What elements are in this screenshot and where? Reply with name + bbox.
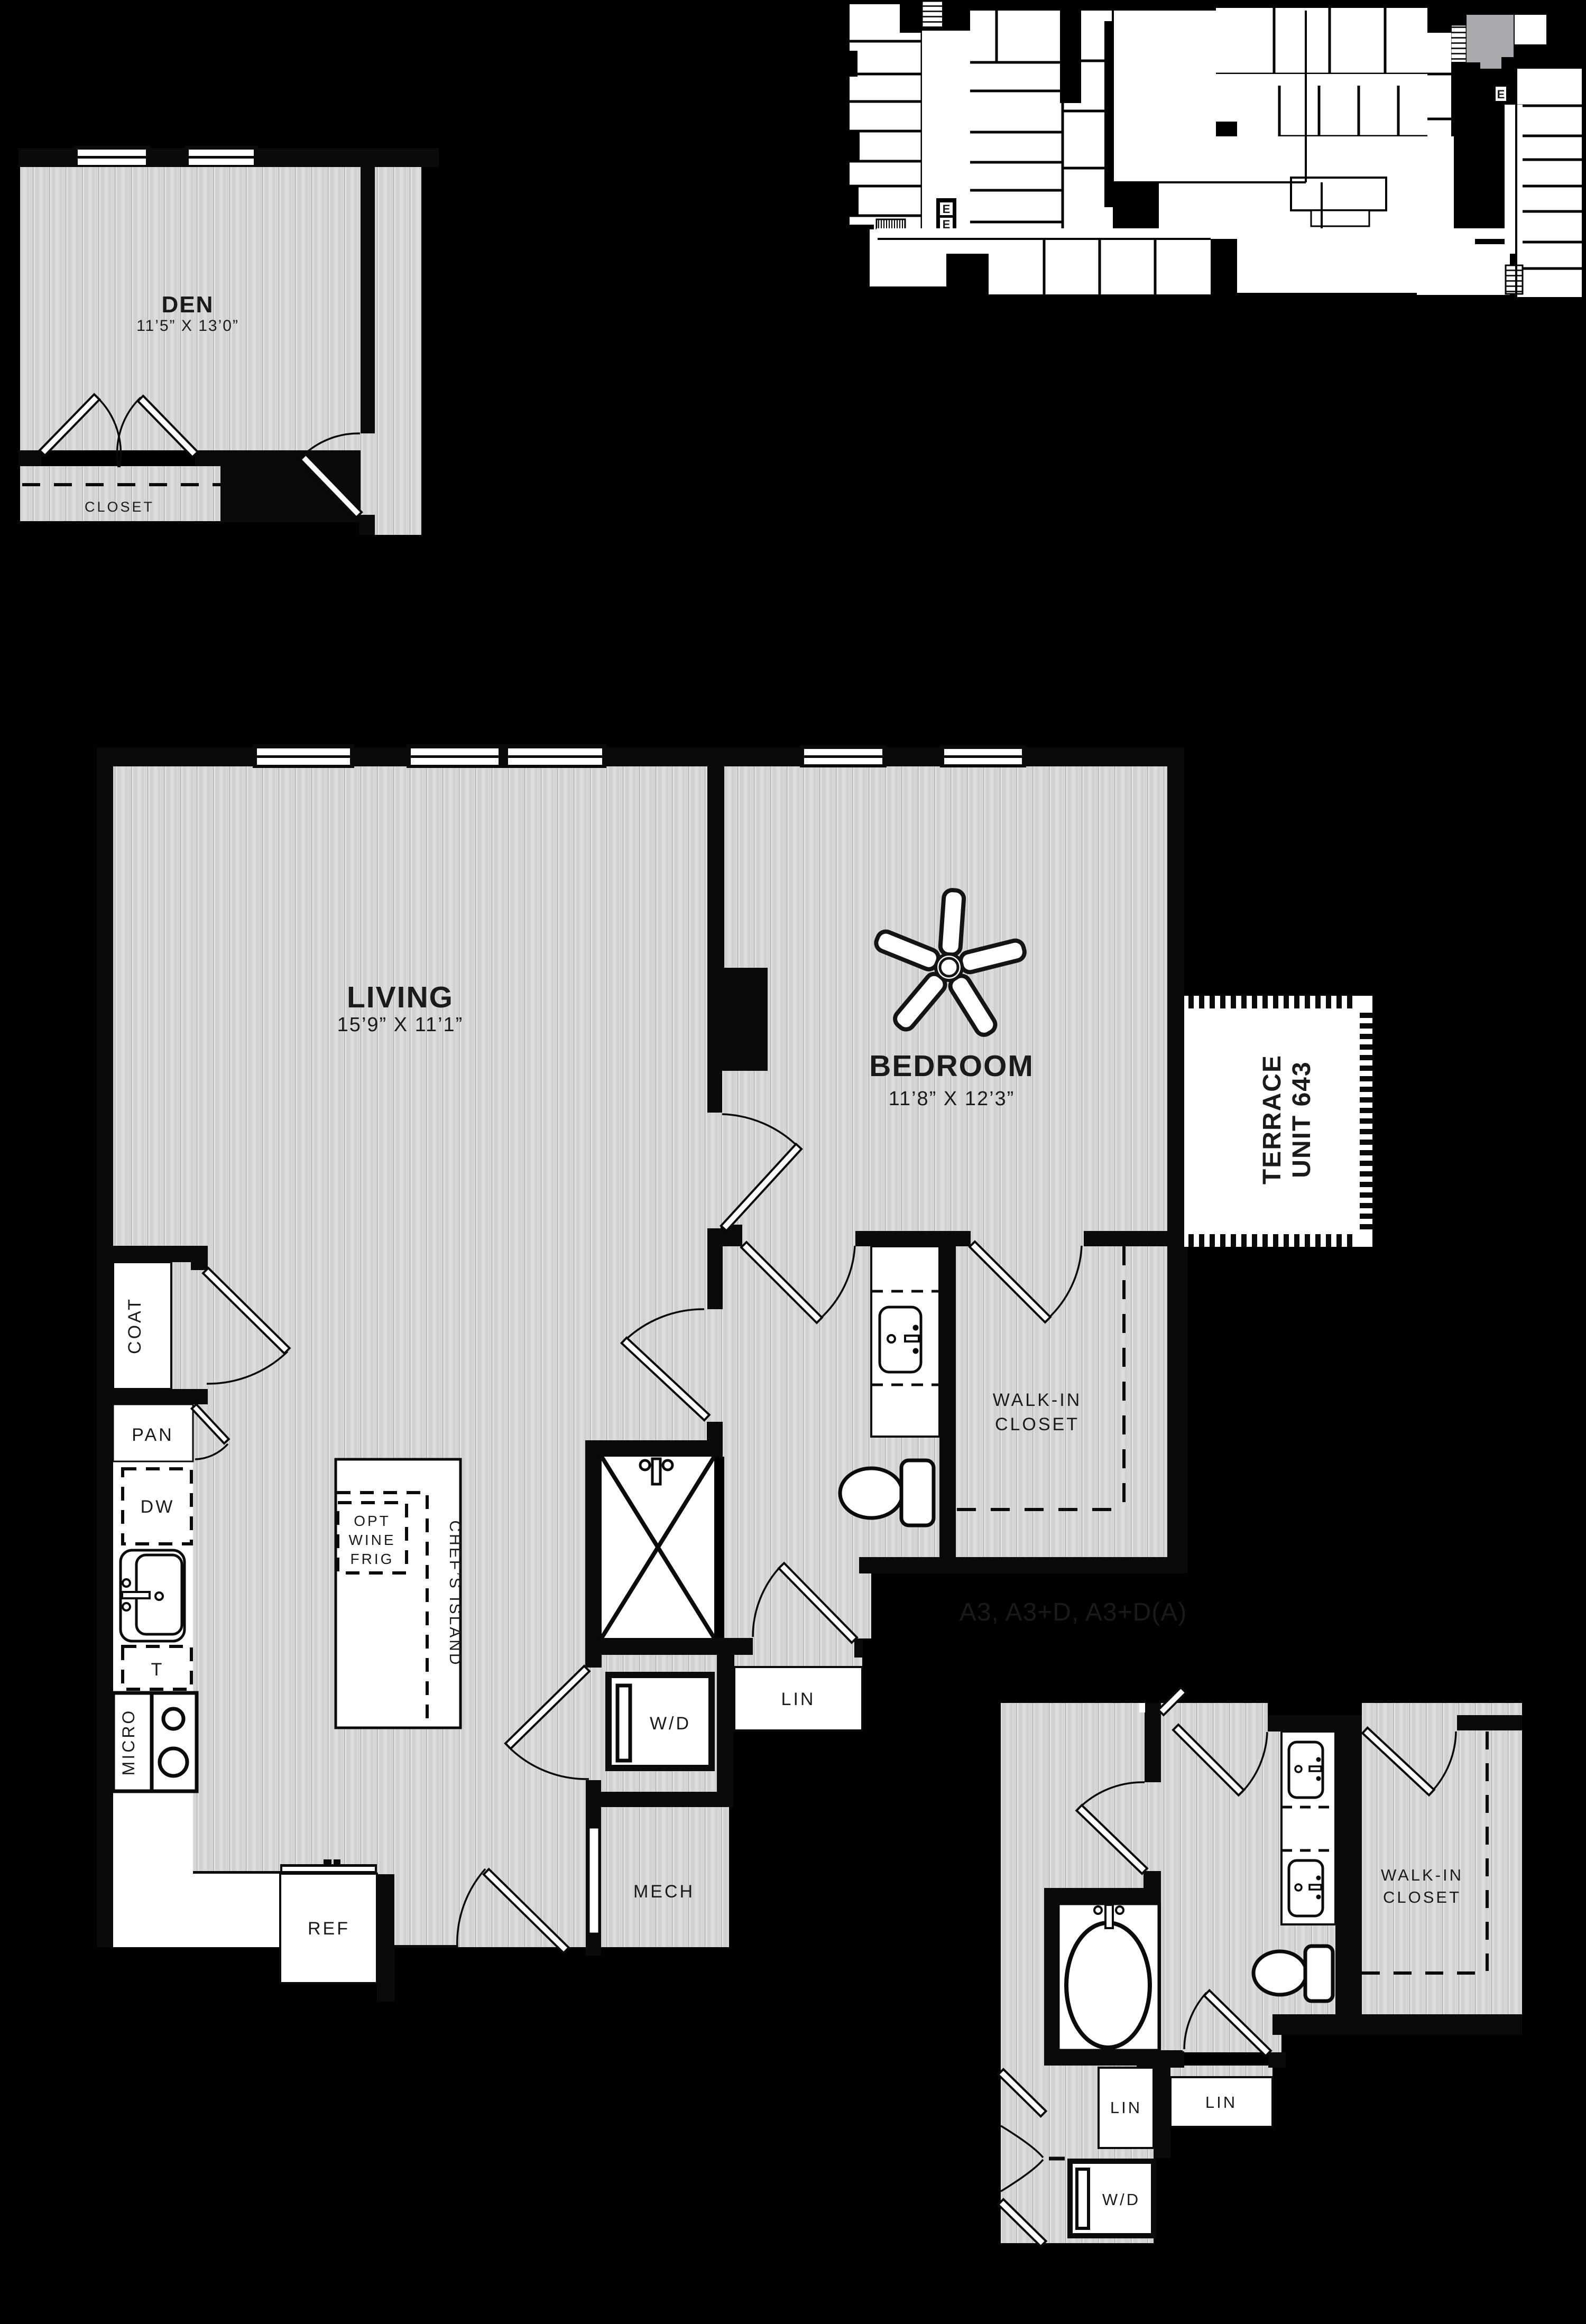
svg-text:FRIG: FRIG [351,1551,394,1567]
svg-text:LIN: LIN [1110,2098,1142,2117]
svg-text:A3, A3+D, A3+D(A): A3, A3+D, A3+D(A) [960,1598,1187,1626]
svg-text:W/D: W/D [1102,2190,1140,2209]
svg-text:WALK-IN: WALK-IN [1381,1866,1463,1884]
svg-text:BEDROOM: BEDROOM [869,1049,1034,1083]
svg-text:PAN: PAN [132,1425,173,1445]
svg-text:LIN: LIN [1205,2093,1237,2112]
svg-text:DW: DW [141,1497,175,1517]
svg-text:COAT: COAT [125,1297,145,1354]
svg-text:T: T [151,1660,164,1680]
svg-text:CLOSET: CLOSET [1383,1888,1461,1906]
svg-text:11’5” X 13’0”: 11’5” X 13’0” [136,317,239,335]
svg-text:CLOSET: CLOSET [85,499,154,515]
svg-text:WINE: WINE [348,1532,395,1548]
svg-text:LIVING: LIVING [347,980,454,1014]
svg-text:OPT: OPT [354,1513,391,1529]
svg-text:MECH: MECH [633,1882,695,1902]
svg-text:W/D: W/D [650,1714,691,1734]
svg-text:CLOSET: CLOSET [995,1414,1080,1434]
svg-text:15’9” X 11’1”: 15’9” X 11’1” [337,1014,464,1036]
svg-text:WALK-IN: WALK-IN [993,1390,1082,1410]
svg-text:MICRO: MICRO [119,1709,138,1776]
svg-text:11’8” X 12’3”: 11’8” X 12’3” [889,1088,1015,1110]
svg-text:DEN: DEN [162,292,214,318]
svg-text:E: E [1497,88,1505,101]
svg-text:E: E [943,202,951,216]
svg-text:CHEF’S ISLAND: CHEF’S ISLAND [446,1520,464,1666]
svg-text:TERRACE: TERRACE [1258,1054,1286,1184]
svg-text:UNIT 643: UNIT 643 [1288,1061,1316,1178]
svg-text:LIN: LIN [781,1689,816,1709]
svg-text:REF: REF [308,1919,350,1939]
